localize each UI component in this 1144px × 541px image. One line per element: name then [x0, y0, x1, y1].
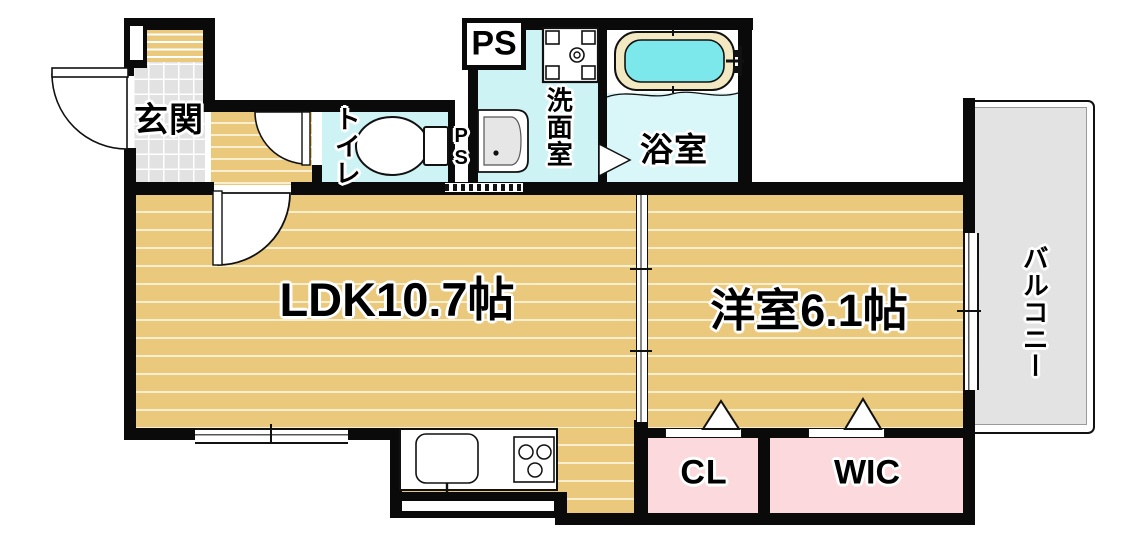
pipe-space-top-label: PS	[471, 27, 516, 62]
balcony-label: バルコニー	[1021, 245, 1048, 380]
toilet-icon	[356, 117, 448, 175]
stove-icon	[514, 437, 554, 482]
sink-icon	[478, 110, 528, 172]
kitchen-counter-icon	[400, 429, 557, 492]
toilet-door-arc	[255, 112, 310, 165]
fixtures-layer	[0, 0, 1144, 541]
toilet-label: トイレ	[333, 106, 360, 187]
bathroom-label: 浴室	[640, 133, 708, 167]
floor-plan: 玄関 トイレ PS PS 洗面室 浴室 LDK10.7帖 洋室6.1帖 バルコニ…	[0, 0, 1144, 541]
wic-door-marker	[845, 399, 881, 429]
bathroom-door-marker	[599, 144, 630, 176]
western-room-label: 洋室6.1帖	[710, 288, 908, 334]
walk-in-closet-label: WIC	[834, 456, 900, 491]
bathtub-icon	[607, 29, 744, 97]
washroom-label: 洗面室	[545, 87, 572, 168]
washer-pan-icon	[543, 28, 598, 82]
ldk-door-arc	[213, 191, 290, 265]
entrance-door-arc	[52, 68, 128, 149]
kitchen-sink-icon	[416, 434, 478, 492]
pipe-space-side-label: PS	[451, 125, 471, 169]
ldk-label: LDK10.7帖	[279, 276, 514, 324]
entrance-label: 玄関	[134, 104, 204, 139]
closet-door-marker	[703, 401, 739, 429]
closet-label: CL	[680, 456, 727, 491]
